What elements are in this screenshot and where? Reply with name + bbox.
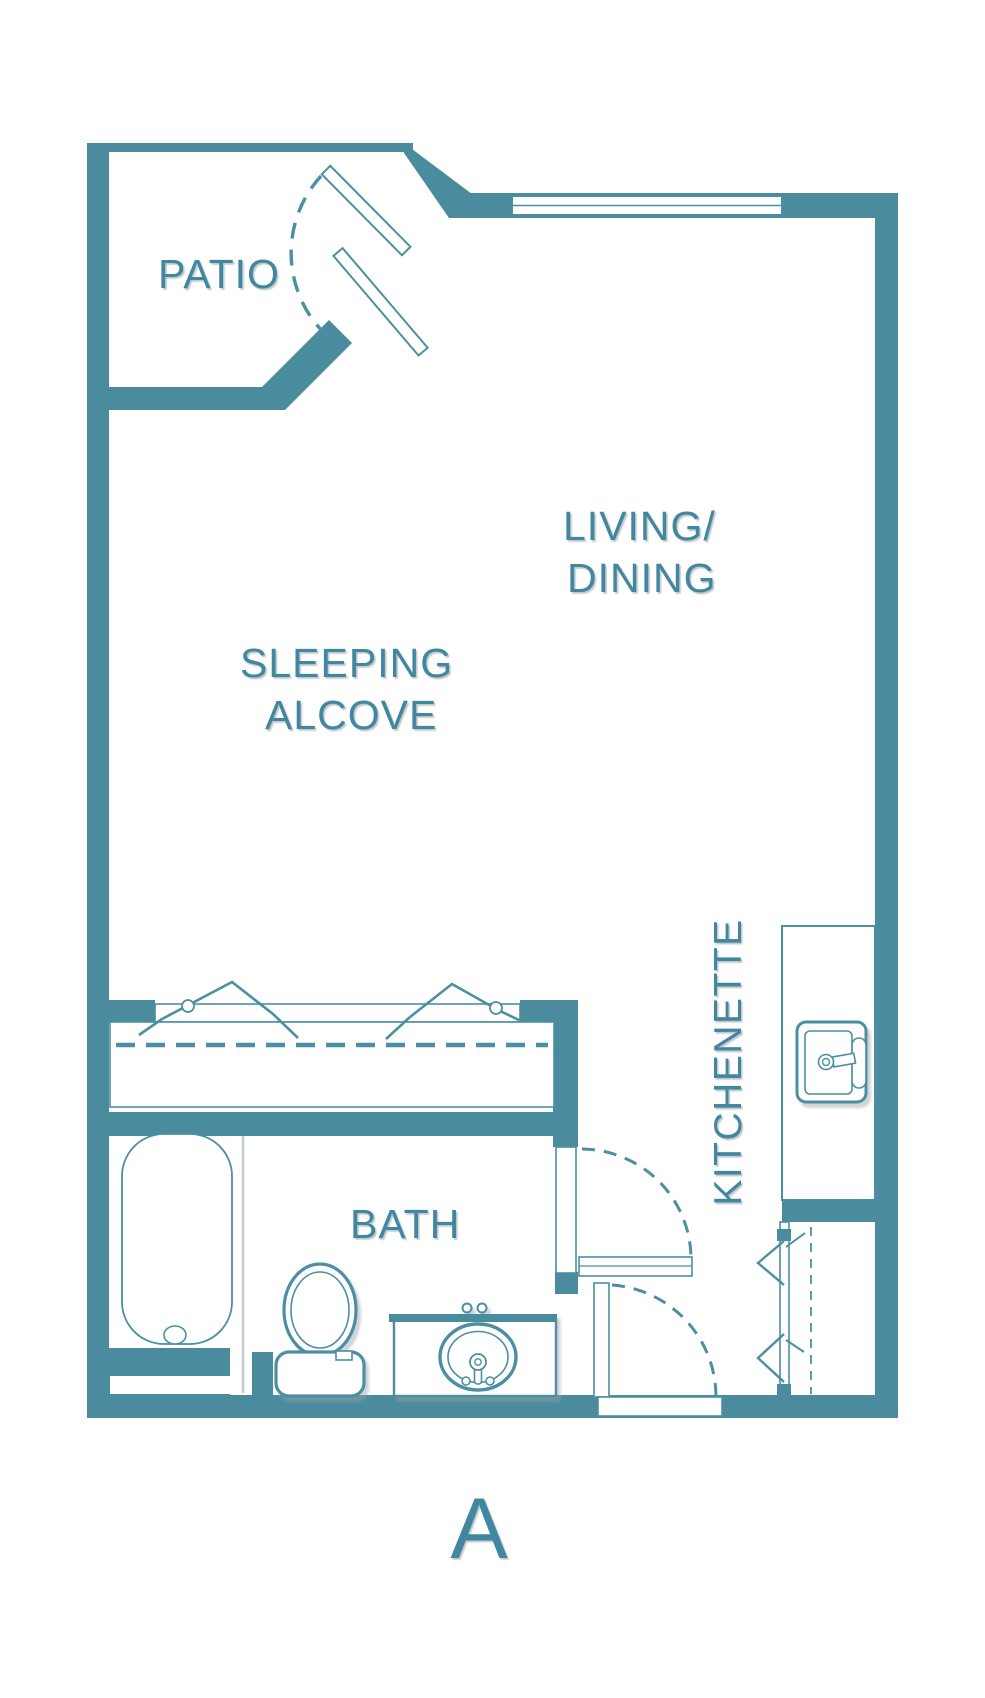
right-wall (875, 193, 898, 1418)
toilet-flush-button (336, 1351, 352, 1360)
bathtub-drain (164, 1326, 186, 1344)
closet-left-stub-wall (109, 1000, 155, 1022)
bath-horizontal-wall (87, 1112, 578, 1136)
vanity-faucet-ring (470, 1354, 486, 1370)
entry-door-swing-arc (612, 1285, 716, 1396)
bathtub-outline (122, 1134, 232, 1344)
patio-sliding-door (291, 166, 428, 356)
bath-door-post (555, 1272, 578, 1294)
bifold-left-pivot (182, 1000, 194, 1012)
entry-closet-bifold (758, 1222, 811, 1397)
label-sleeping-line2: ALCOVE (265, 692, 437, 738)
patio-lower-diagonal-wall (262, 320, 352, 410)
alcove-closet (110, 982, 554, 1107)
label-unit: A (450, 1481, 508, 1577)
tub-foot-niche (110, 1376, 230, 1394)
bathtub (122, 1134, 232, 1344)
kitchen-faucet-ring (819, 1055, 834, 1070)
vanity-knob-right (478, 1304, 487, 1313)
bath-doorway (556, 1147, 576, 1273)
label-kitchenette: KITCHENETTE (707, 918, 750, 1205)
floor-plan: PATIO LIVING/ DINING SLEEPING ALCOVE KIT… (0, 0, 985, 1698)
label-bath: BATH (350, 1201, 460, 1247)
patio-door-panel-upper (322, 166, 411, 255)
kitchenette-counter-base-wall (782, 1200, 875, 1222)
left-wall (87, 143, 109, 1418)
kitchen-sink (797, 1022, 866, 1102)
window (512, 196, 782, 215)
vanity-backsplash (389, 1314, 557, 1322)
label-patio: PATIO (158, 251, 280, 297)
doors (556, 1147, 811, 1416)
vanity-knob-left (463, 1304, 472, 1313)
vanity-handle-right (486, 1377, 494, 1385)
floor-plan-drawing: PATIO LIVING/ DINING SLEEPING ALCOVE KIT… (0, 0, 985, 1698)
toilet (276, 1264, 364, 1396)
entry-closet-pivot-top (777, 1229, 791, 1241)
entry-threshold (598, 1397, 722, 1416)
toilet-bowl-outer (284, 1264, 356, 1356)
bath-door-swing-arc (582, 1149, 691, 1261)
wardrobe-box (110, 1022, 554, 1107)
entry-door-leaf (594, 1283, 609, 1397)
tub-foot-wall-stub (252, 1352, 273, 1397)
label-sleeping-line1: SLEEPING (240, 640, 453, 686)
bath-door (556, 1147, 692, 1276)
vanity-handle-left (462, 1377, 470, 1385)
entry-closet-pivot-bottom (777, 1384, 791, 1397)
closet-right-stub-wall (520, 1000, 578, 1022)
patio-top-wall (87, 143, 413, 152)
patio-bottom-wall (87, 387, 285, 410)
patio-door-swing-arc (291, 176, 334, 342)
closet-track (155, 1004, 520, 1022)
kitchenette (782, 926, 875, 1200)
label-living-line1: LIVING/ (563, 503, 716, 549)
bifold-right-pivot (490, 1002, 502, 1014)
vanity (389, 1304, 557, 1397)
label-living-line2: DINING (567, 555, 717, 601)
entry-closet-track (780, 1222, 789, 1397)
